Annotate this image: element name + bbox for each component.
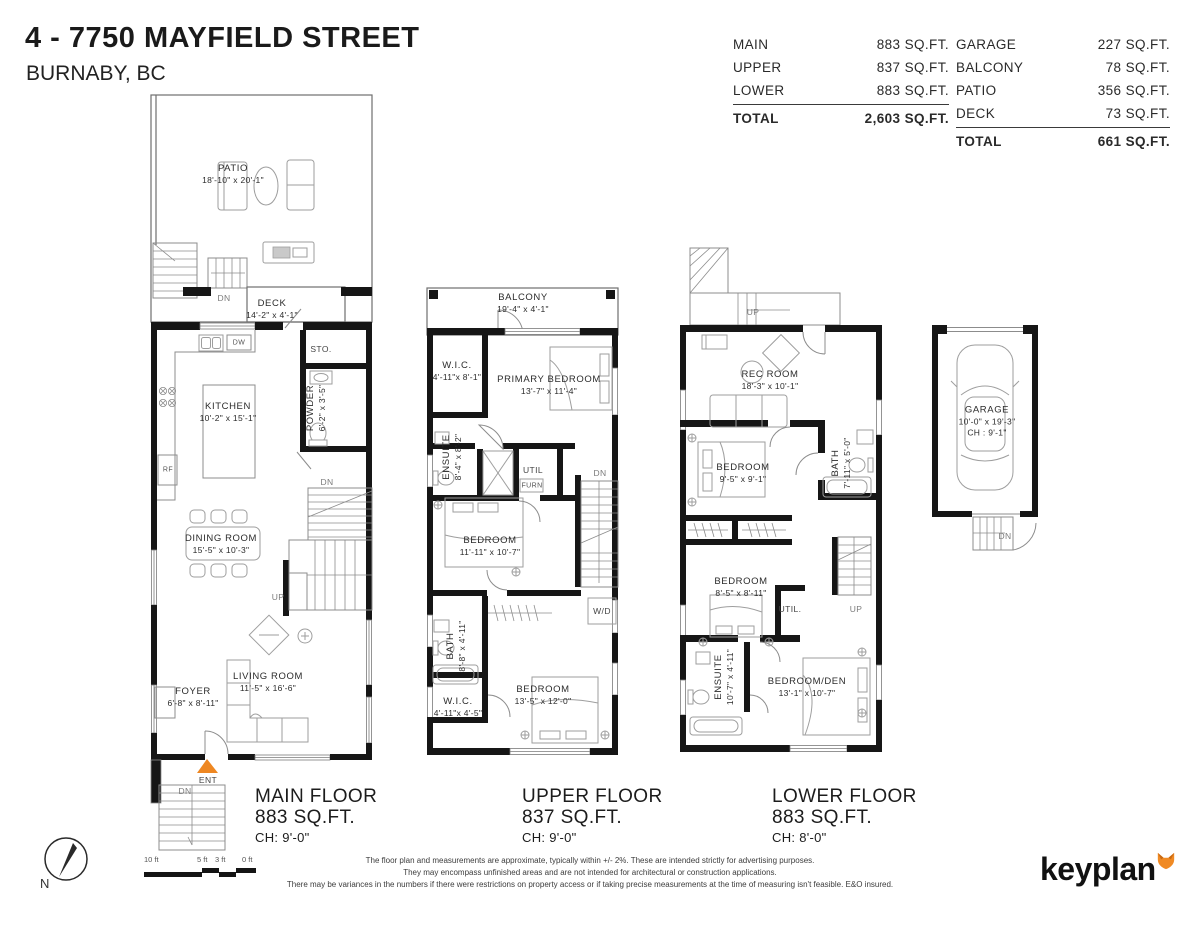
room-label-wic: W.I.C. 4'-11"x 8'-1" bbox=[433, 360, 481, 383]
upper-floor-caption: UPPER FLOOR 837 SQ.FT. CH: 9'-0" bbox=[522, 786, 663, 845]
stairs-up-label: UP bbox=[850, 604, 863, 614]
area-label: BALCONY bbox=[956, 60, 1023, 75]
total-label: TOTAL bbox=[733, 111, 779, 126]
room-dims: 11'-11" x 10'-7" bbox=[460, 547, 521, 558]
table-row: GARAGE 227 SQ.FT. bbox=[956, 33, 1170, 56]
room-label-bedroom: BEDROOM 11'-11" x 10'-7" bbox=[460, 535, 521, 558]
stairs-up-label: UP bbox=[272, 592, 285, 602]
room-dims: 15'-5" x 10'-3" bbox=[193, 545, 250, 556]
page-subtitle: BURNABY, BC bbox=[26, 62, 166, 86]
dishwasher-label: DW bbox=[233, 340, 245, 347]
room-name: PATIO bbox=[218, 163, 248, 175]
floor-area: 837 SQ.FT. bbox=[522, 807, 663, 828]
room-label-bedroom-mid: BEDROOM 8'-5" x 8'-11" bbox=[714, 576, 767, 599]
disclaimer-line: The floor plan and measurements are appr… bbox=[240, 855, 940, 867]
entry-marker-icon bbox=[197, 759, 218, 773]
floor-area: 883 SQ.FT. bbox=[255, 807, 377, 828]
shower-icon bbox=[483, 451, 513, 495]
total-label: TOTAL bbox=[956, 134, 1002, 149]
stairs-dn-label: DN bbox=[217, 293, 230, 303]
room-name: FOYER bbox=[175, 686, 211, 698]
floor-ceiling-height: CH: 8'-0" bbox=[772, 830, 917, 845]
floor-ceiling-height: CH: 9'-0" bbox=[255, 830, 377, 845]
room-label-bath: BATH 8'-8" x 4'-11" bbox=[445, 620, 468, 671]
room-dims: 13'-7" x 11'-4" bbox=[521, 386, 577, 397]
table-row: UPPER 837 SQ.FT. bbox=[733, 56, 949, 79]
area-value: 837 SQ.FT. bbox=[877, 60, 949, 75]
room-label-ensuite: ENSUITE 10'-7" x 4'-11" bbox=[713, 649, 736, 705]
room-name: BATH bbox=[830, 449, 842, 476]
room-name: GARAGE bbox=[965, 404, 1009, 416]
area-value: 883 SQ.FT. bbox=[877, 37, 949, 52]
room-name: DINING ROOM bbox=[185, 533, 257, 545]
table-row: PATIO 356 SQ.FT. bbox=[956, 79, 1170, 102]
stairs-up-label: UP bbox=[747, 307, 760, 317]
scale-tick-label: 10 ft bbox=[144, 855, 159, 864]
floor-name: LOWER FLOOR bbox=[772, 786, 917, 807]
room-dims: 6'-8" x 8'-11" bbox=[167, 698, 218, 709]
room-dims: 8'-5" x 8'-11" bbox=[715, 588, 766, 599]
area-label: PATIO bbox=[956, 83, 997, 98]
area-value: 883 SQ.FT. bbox=[877, 83, 949, 98]
room-dims: 8'-8" x 4'-11" bbox=[457, 620, 468, 671]
garage-plan bbox=[925, 315, 1045, 565]
fox-icon bbox=[1156, 852, 1176, 870]
utility-label: UTIL. bbox=[779, 604, 802, 614]
total-value: 2,603 SQ.FT. bbox=[865, 111, 949, 126]
table-row: BALCONY 78 SQ.FT. bbox=[956, 56, 1170, 79]
room-dims: 10'-2" x 15'-1" bbox=[200, 413, 257, 424]
room-name: LIVING ROOM bbox=[233, 671, 303, 683]
room-label-foyer: FOYER 6'-8" x 8'-11" bbox=[167, 686, 218, 709]
floor-name: UPPER FLOOR bbox=[522, 786, 663, 807]
entrance-label: ENT bbox=[199, 775, 217, 785]
room-label-deck: DECK 14'-2" x 4'-1" bbox=[246, 298, 298, 321]
kitchen-sink-icon bbox=[199, 335, 223, 351]
room-dims: 11'-5" x 16'-6" bbox=[240, 683, 296, 694]
room-label-balcony: BALCONY 19'-4" x 4'-1" bbox=[497, 292, 549, 315]
main-floor-drawing bbox=[145, 85, 380, 860]
stove-icon bbox=[159, 387, 175, 406]
room-dims: 14'-2" x 4'-1" bbox=[246, 310, 298, 321]
stairs-up bbox=[838, 537, 871, 595]
area-label: UPPER bbox=[733, 60, 782, 75]
room-name: ENSUITE bbox=[713, 654, 725, 699]
room-dims: 19'-4" x 4'-1" bbox=[497, 304, 549, 315]
powder-door bbox=[297, 452, 311, 469]
interior-area-table: MAIN 883 SQ.FT. UPPER 837 SQ.FT. LOWER 8… bbox=[733, 33, 949, 132]
room-label-living-room: LIVING ROOM 11'-5" x 16'-6" bbox=[233, 671, 303, 694]
area-value: 78 SQ.FT. bbox=[1106, 60, 1170, 75]
room-dims: 13'-1" x 10'-7" bbox=[779, 688, 836, 699]
room-name: BATH bbox=[445, 632, 457, 659]
disclaimer-line: There may be variances in the numbers if… bbox=[240, 879, 940, 891]
table-total-row: TOTAL 2,603 SQ.FT. bbox=[733, 105, 949, 132]
room-label-powder: POWDER 6'-2" x 3'-5" bbox=[305, 385, 328, 432]
room-label-garage: GARAGE 10'-0" x 19'-3" CH : 9'-1" bbox=[959, 404, 1016, 437]
room-label-dining-room: DINING ROOM 15'-5" x 10'-3" bbox=[185, 533, 257, 556]
scale-tick-label: 5 ft bbox=[197, 855, 207, 864]
floor-area: 883 SQ.FT. bbox=[772, 807, 917, 828]
table-row: DECK 73 SQ.FT. bbox=[956, 102, 1170, 125]
coffee-table-icon bbox=[249, 615, 312, 655]
room-dims: 7'-11" x 5'-0" bbox=[842, 437, 853, 488]
kitchen-island bbox=[203, 385, 255, 478]
disclaimer-text: The floor plan and measurements are appr… bbox=[240, 855, 940, 891]
room-dims: 10'-0" x 19'-3" bbox=[959, 416, 1016, 427]
room-dims: 8'-4" x 8'-2" bbox=[453, 434, 464, 481]
disclaimer-line: They may encompass unfinished areas and … bbox=[240, 867, 940, 879]
stairs-dn-label: DN bbox=[593, 468, 606, 478]
floor-plan-sheet: 4 - 7750 MAYFIELD STREET BURNABY, BC MAI… bbox=[0, 0, 1200, 927]
compass-north-label: N bbox=[40, 876, 49, 891]
lower-floor-caption: LOWER FLOOR 883 SQ.FT. CH: 8'-0" bbox=[772, 786, 917, 845]
logo-wordmark: keyplan bbox=[1040, 851, 1156, 887]
stairs-dn-label: DN bbox=[998, 531, 1011, 541]
area-value: 73 SQ.FT. bbox=[1106, 106, 1170, 121]
fridge-label: RF bbox=[163, 467, 173, 474]
room-ceiling: CH : 9'-1" bbox=[967, 427, 1006, 438]
floor-ceiling-height: CH: 9'-0" bbox=[522, 830, 663, 845]
powder-sink-icon bbox=[310, 371, 332, 384]
deck-stairs bbox=[208, 258, 247, 288]
main-floor-caption: MAIN FLOOR 883 SQ.FT. CH: 9'-0" bbox=[255, 786, 377, 845]
entry-stairs bbox=[151, 760, 225, 850]
garage-drawing bbox=[925, 315, 1045, 565]
room-label-rec-room: REC ROOM 18'-3" x 10'-1" bbox=[741, 369, 798, 392]
stairs-dn-label: DN bbox=[320, 477, 333, 487]
room-name: PRIMARY BEDROOM bbox=[497, 374, 601, 386]
scale-tick-label: 3 ft bbox=[215, 855, 225, 864]
closet-hangers bbox=[488, 605, 552, 621]
room-dims: 6'-2" x 3'-5" bbox=[317, 385, 328, 432]
bbq-icon bbox=[263, 242, 314, 263]
room-label-wic-small: W.I.C. 4'-11"x 4'-5" bbox=[434, 696, 482, 719]
stairs-dn-label: DN bbox=[178, 786, 191, 796]
room-name: W.I.C. bbox=[442, 360, 471, 372]
exterior-stairs-up bbox=[690, 248, 840, 325]
room-name: ENSUITE bbox=[441, 434, 453, 479]
page-title: 4 - 7750 MAYFIELD STREET bbox=[25, 22, 419, 55]
room-name: BALCONY bbox=[498, 292, 548, 304]
room-label-bath: BATH 7'-11" x 5'-0" bbox=[830, 437, 853, 488]
table-row: MAIN 883 SQ.FT. bbox=[733, 33, 949, 56]
room-dims: 4'-11"x 8'-1" bbox=[433, 372, 481, 383]
room-label-primary-bedroom: PRIMARY BEDROOM 13'-7" x 11'-4" bbox=[497, 374, 601, 397]
room-label-ensuite: ENSUITE 8'-4" x 8'-2" bbox=[441, 434, 464, 481]
room-name: KITCHEN bbox=[205, 401, 251, 413]
room-name: BEDROOM bbox=[716, 462, 769, 474]
room-name: BEDROOM bbox=[714, 576, 767, 588]
storage-label: STO. bbox=[310, 344, 331, 354]
room-name: DECK bbox=[258, 298, 287, 310]
room-label-bedroom-rear: BEDROOM 13'-5" x 12'-0" bbox=[515, 684, 572, 707]
furnace-label: FURN bbox=[521, 483, 542, 490]
room-label-bedroom-den: BEDROOM/DEN 13'-1" x 10'-7" bbox=[768, 676, 846, 699]
room-label-kitchen: KITCHEN 10'-2" x 15'-1" bbox=[200, 401, 257, 424]
interior-stairs bbox=[289, 488, 372, 610]
room-dims: 4'-11"x 4'-5" bbox=[434, 708, 482, 719]
keyplan-logo: keyplan bbox=[1040, 851, 1176, 887]
table-row: LOWER 883 SQ.FT. bbox=[733, 79, 949, 102]
area-label: GARAGE bbox=[956, 37, 1016, 52]
room-dims: 18'-3" x 10'-1" bbox=[742, 381, 799, 392]
room-name: BEDROOM bbox=[516, 684, 569, 696]
room-dims: 10'-7" x 4'-11" bbox=[725, 649, 736, 705]
area-value: 227 SQ.FT. bbox=[1098, 37, 1170, 52]
floor-name: MAIN FLOOR bbox=[255, 786, 377, 807]
room-name: REC ROOM bbox=[741, 369, 798, 381]
room-name: W.I.C. bbox=[443, 696, 472, 708]
table-total-row: TOTAL 661 SQ.FT. bbox=[956, 128, 1170, 155]
room-name: BEDROOM bbox=[463, 535, 516, 547]
room-dims: 18'-10" x 20'-1" bbox=[202, 175, 264, 186]
room-label-bedroom-front: BEDROOM 9'-5" x 9'-1" bbox=[716, 462, 769, 485]
area-value: 356 SQ.FT. bbox=[1098, 83, 1170, 98]
area-label: MAIN bbox=[733, 37, 768, 52]
room-label-patio: PATIO 18'-10" x 20'-1" bbox=[202, 163, 264, 186]
main-floor-plan bbox=[145, 85, 380, 860]
rec-room-door bbox=[803, 332, 825, 354]
area-label: DECK bbox=[956, 106, 995, 121]
area-label: LOWER bbox=[733, 83, 785, 98]
room-dims: 13'-5" x 12'-0" bbox=[515, 696, 572, 707]
entry-door bbox=[205, 731, 228, 754]
washer-dryer-label: W/D bbox=[593, 606, 611, 616]
total-value: 661 SQ.FT. bbox=[1098, 134, 1170, 149]
exterior-area-table: GARAGE 227 SQ.FT. BALCONY 78 SQ.FT. PATI… bbox=[956, 33, 1170, 155]
room-name: BEDROOM/DEN bbox=[768, 676, 846, 688]
room-name: POWDER bbox=[305, 385, 317, 431]
utility-label: UTIL bbox=[523, 465, 543, 475]
room-dims: 9'-5" x 9'-1" bbox=[720, 474, 767, 485]
